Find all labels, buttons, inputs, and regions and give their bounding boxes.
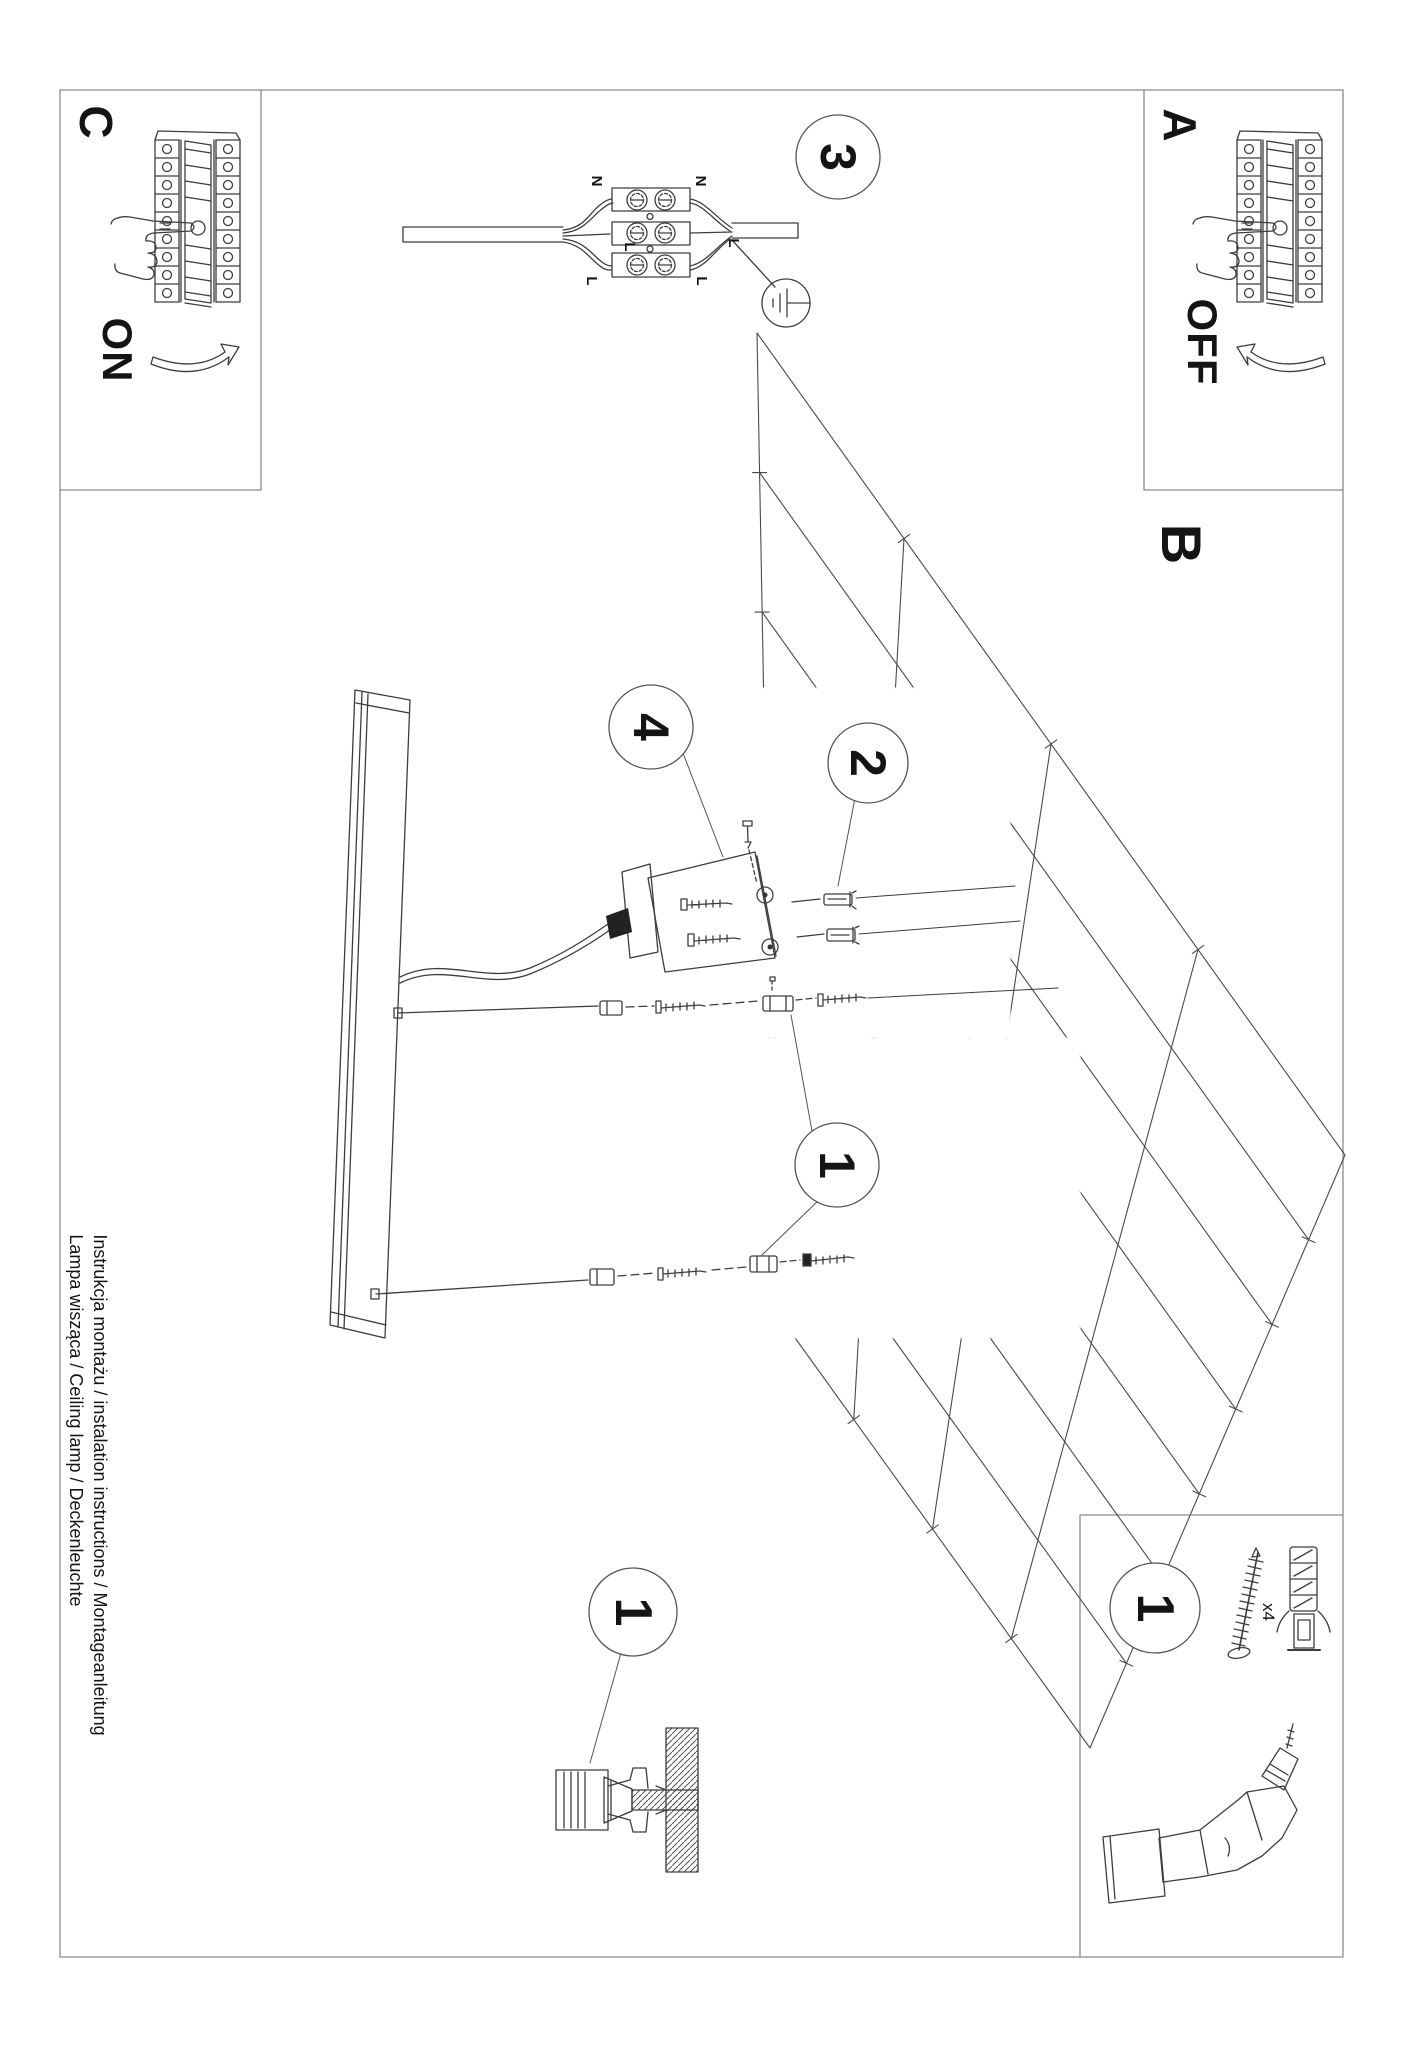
wire-label-l-mid-left: L (620, 237, 640, 257)
rotate-on-arrow-icon (151, 344, 239, 372)
step-a-label: A (1155, 100, 1205, 150)
callout-circle-3-label: 3 (808, 127, 868, 187)
wire-label-l-bottom-left: L (582, 271, 602, 291)
anchor-cross-section-drawing (556, 1728, 698, 1872)
step-c-label: C (71, 97, 121, 147)
terminal-block-drawing (403, 188, 810, 327)
callout-circle-1-parts-label: 1 (1125, 1578, 1185, 1638)
callout-circle-1-mid-label: 1 (807, 1135, 867, 1195)
wire-label-n-right: N (691, 171, 711, 191)
callout-circles (589, 115, 1200, 1763)
footer-line-2: Lampa wisząca / Ceiling lamp / Deckenleu… (64, 1234, 88, 1735)
step-b-label: B (1152, 514, 1212, 574)
callout-circle-2-label: 2 (838, 733, 898, 793)
anchor-quantity-label: x4 (1258, 1597, 1278, 1627)
parts-drill-drawing (1103, 1724, 1298, 1903)
wire-label-n-left: N (587, 171, 607, 191)
wire-label-l-mid-right: L (724, 233, 744, 253)
wire-label-l-bottom-right: L (692, 271, 712, 291)
switch-on-label: ON (95, 314, 139, 386)
footer-title: Instrukcja montażu / instalation instruc… (64, 1270, 112, 1700)
parts-wall-plug-drawing (1277, 1547, 1330, 1650)
canopy-box-drawing (400, 821, 1020, 990)
callout-circle-1-bottom-label: 1 (603, 1582, 663, 1642)
page-frame (60, 90, 1343, 1957)
lamp-bar-drawing (330, 690, 410, 1338)
switch-off-label: OFF (1180, 296, 1224, 388)
callout-circle-4-label: 4 (621, 697, 681, 757)
ceiling-grid-drawing (753, 333, 1345, 1748)
rotate-off-arrow-icon (1237, 344, 1325, 372)
earth-ground-icon (762, 279, 810, 327)
suspension-lower-drawing (371, 1254, 854, 1299)
instruction-sheet: C ON A OFF B 3 4 2 1 1 1 N N L L L L x4 … (0, 0, 1405, 2047)
footer-line-1: Instrukcja montażu / instalation instruc… (88, 1234, 112, 1735)
suspension-upper-drawing (394, 988, 1058, 1018)
